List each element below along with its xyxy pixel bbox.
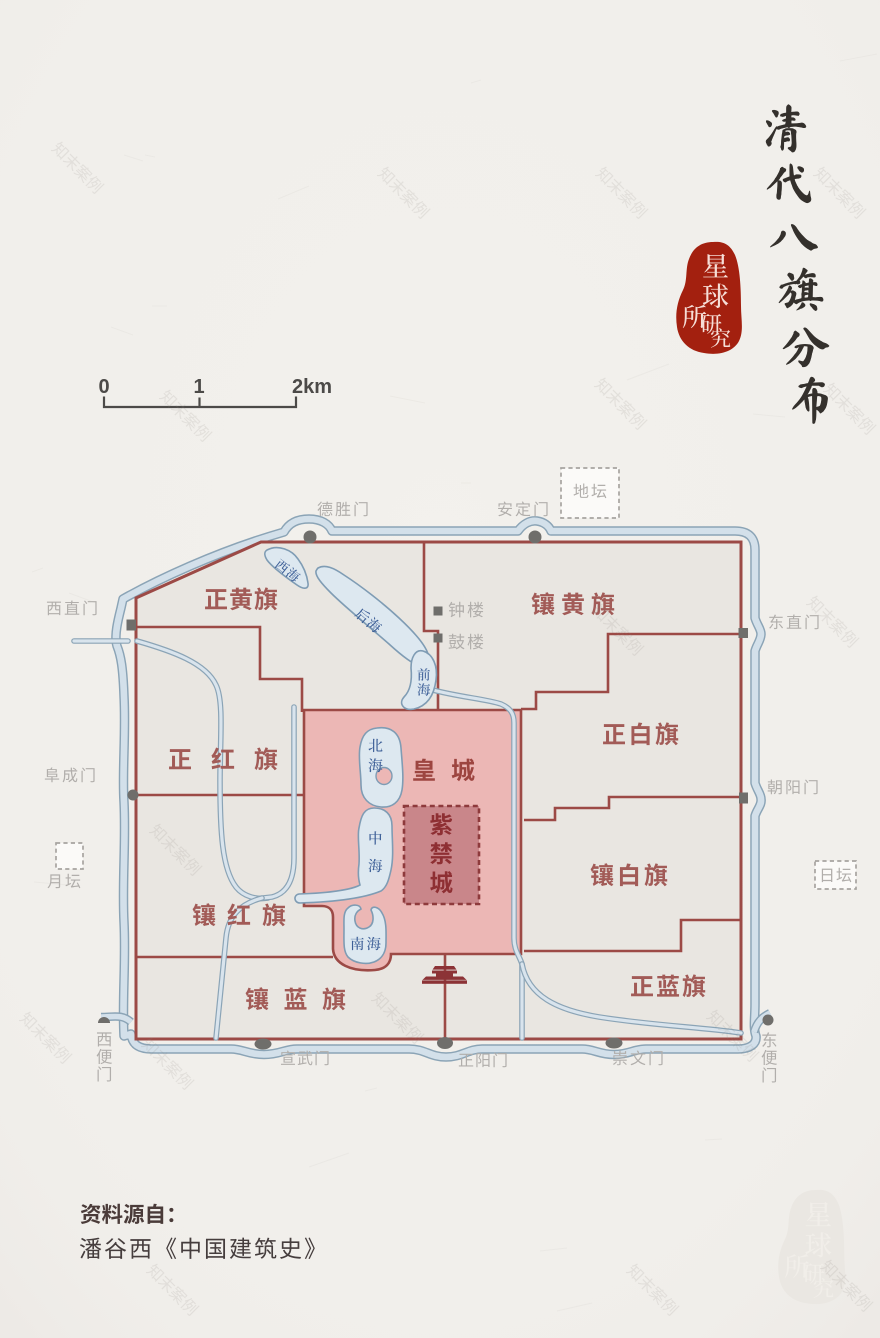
svg-text:1: 1: [193, 376, 204, 398]
svg-text:2km: 2km: [292, 376, 332, 398]
svg-text:0: 0: [98, 376, 109, 398]
